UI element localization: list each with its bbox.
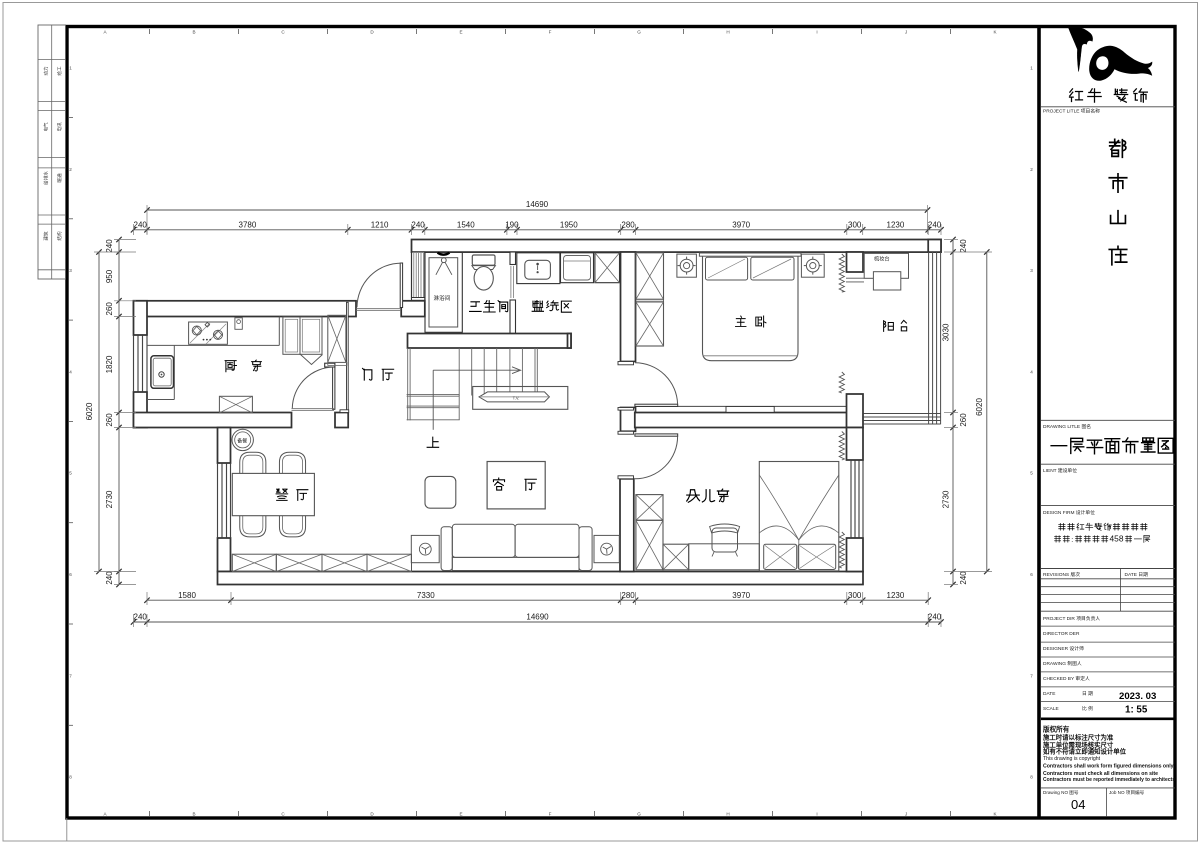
svg-text:J: J: [905, 30, 907, 35]
svg-text:3030: 3030: [942, 323, 951, 341]
svg-text:2023. 03: 2023. 03: [1119, 691, 1156, 702]
svg-text:Contractors shall work form fi: Contractors shall work form figured dime…: [1043, 763, 1174, 769]
svg-text:1230: 1230: [887, 220, 905, 229]
svg-text:T.V.: T.V.: [513, 395, 520, 400]
svg-text:PROJECT DIR 项目负责人: PROJECT DIR 项目负责人: [1043, 615, 1100, 622]
svg-text:B: B: [192, 812, 195, 817]
svg-text:如有不符请立即通知设计单位: 如有不符请立即通知设计单位: [1043, 747, 1127, 756]
svg-text:This drawing is copyright: This drawing is copyright: [1043, 756, 1101, 762]
svg-text:施工单位需现场核实尺寸: 施工单位需现场核实尺寸: [1043, 740, 1114, 749]
svg-text:300: 300: [848, 591, 862, 600]
svg-text:3970: 3970: [732, 591, 750, 600]
svg-text:240: 240: [959, 571, 968, 585]
svg-text:1: 1: [1030, 66, 1033, 71]
svg-text:DRAWING LITLE 图名: DRAWING LITLE 图名: [1043, 423, 1091, 430]
svg-text:1580: 1580: [178, 591, 196, 600]
svg-text:6: 6: [1030, 572, 1033, 577]
svg-text:7: 7: [1030, 673, 1033, 678]
svg-text:结构: 结构: [56, 231, 63, 241]
svg-text:7: 7: [69, 673, 72, 678]
svg-text:2: 2: [69, 167, 72, 172]
svg-text:DRAWING 制图人: DRAWING 制图人: [1043, 660, 1082, 667]
svg-text:240: 240: [105, 239, 114, 253]
svg-text:1: 55: 1: 55: [1125, 705, 1148, 716]
svg-text:2: 2: [1030, 167, 1033, 172]
svg-text:240: 240: [959, 239, 968, 253]
svg-text:1230: 1230: [887, 591, 905, 600]
svg-text:2730: 2730: [105, 490, 114, 508]
svg-text:240: 240: [411, 220, 425, 229]
svg-text:1540: 1540: [457, 220, 475, 229]
svg-text:日 期: 日 期: [1082, 691, 1093, 697]
svg-text:G: G: [637, 30, 641, 35]
svg-text:458: 458: [1110, 534, 1124, 544]
svg-text:260: 260: [959, 413, 968, 427]
svg-text:淋浴间: 淋浴间: [434, 294, 451, 302]
svg-text:280: 280: [621, 591, 635, 600]
svg-text:04: 04: [1071, 797, 1085, 812]
svg-text:PROJECT LITLE 项目名称: PROJECT LITLE 项目名称: [1043, 108, 1100, 115]
svg-text:F: F: [549, 30, 552, 35]
svg-text:3: 3: [69, 268, 72, 273]
svg-text:240: 240: [928, 613, 942, 622]
svg-text:H: H: [726, 30, 729, 35]
svg-text:3: 3: [1030, 268, 1033, 273]
svg-text:暖通: 暖通: [56, 173, 63, 183]
svg-text:3780: 3780: [239, 220, 257, 229]
svg-text:F: F: [549, 812, 552, 817]
svg-text:8: 8: [1030, 775, 1033, 780]
svg-text:1950: 1950: [560, 220, 578, 229]
svg-text:SCALE: SCALE: [1043, 706, 1059, 712]
svg-text:950: 950: [105, 269, 114, 283]
svg-text:6020: 6020: [85, 402, 94, 420]
svg-text:DESIGNER 设计师: DESIGNER 设计师: [1043, 645, 1084, 652]
svg-text:6: 6: [69, 572, 72, 577]
svg-text:I: I: [816, 30, 817, 35]
svg-text:比 例: 比 例: [1082, 705, 1093, 712]
svg-text:梳妆台: 梳妆台: [874, 255, 890, 263]
svg-text:240: 240: [928, 220, 942, 229]
svg-text:Contractors must check all dim: Contractors must check all dimensions on…: [1043, 771, 1158, 777]
svg-text:G: G: [637, 812, 641, 817]
svg-text:LIENT 建设单位: LIENT 建设单位: [1043, 467, 1077, 474]
svg-text:DESIGN FIRM 设计单位: DESIGN FIRM 设计单位: [1043, 509, 1095, 516]
svg-text:240: 240: [134, 220, 148, 229]
svg-text:4: 4: [69, 369, 72, 374]
svg-text:280: 280: [621, 220, 635, 229]
svg-text:300: 300: [848, 220, 862, 229]
svg-text:版权所有: 版权所有: [1042, 725, 1070, 734]
svg-text:DATE 日期: DATE 日期: [1125, 572, 1149, 578]
svg-text:施工时请以标注尺寸为准: 施工时请以标注尺寸为准: [1043, 732, 1114, 741]
svg-text:E: E: [459, 812, 462, 817]
svg-text:7330: 7330: [417, 591, 435, 600]
svg-text:1820: 1820: [105, 355, 114, 373]
svg-text:给排水: 给排水: [43, 171, 50, 185]
svg-text:I: I: [816, 812, 817, 817]
svg-text:备餐: 备餐: [237, 437, 247, 444]
svg-text:14690: 14690: [526, 613, 549, 622]
svg-text:电讯: 电讯: [56, 122, 63, 132]
svg-text:动力: 动力: [43, 66, 50, 76]
svg-text:3970: 3970: [732, 220, 750, 229]
svg-text:CHECKED BY 审定人: CHECKED BY 审定人: [1043, 675, 1090, 682]
svg-text:H: H: [726, 812, 729, 817]
svg-text:14690: 14690: [526, 200, 549, 209]
svg-text:建筑: 建筑: [43, 231, 50, 241]
svg-text:电气: 电气: [43, 122, 49, 132]
svg-text:240: 240: [134, 613, 148, 622]
svg-text:4: 4: [1030, 369, 1033, 374]
svg-text:5: 5: [1030, 471, 1033, 476]
svg-text:REVISIONS 版次: REVISIONS 版次: [1043, 571, 1080, 578]
svg-text:Job NO 项目编号: Job NO 项目编号: [1109, 789, 1145, 796]
svg-text:1: 1: [69, 66, 72, 71]
svg-text:260: 260: [105, 413, 114, 427]
svg-text:E: E: [459, 30, 462, 35]
svg-text::: :: [1071, 537, 1073, 544]
svg-text:260: 260: [105, 302, 114, 316]
svg-text:190: 190: [505, 220, 519, 229]
svg-text:8: 8: [69, 775, 72, 780]
svg-text:2730: 2730: [942, 490, 951, 508]
svg-text:240: 240: [105, 571, 114, 585]
svg-text:5: 5: [69, 471, 72, 476]
svg-text:绘工: 绘工: [56, 66, 63, 76]
svg-text:J: J: [905, 812, 907, 817]
svg-text:B: B: [192, 30, 195, 35]
svg-text:DIRECTOR DER: DIRECTOR DER: [1043, 631, 1080, 637]
svg-text:6020: 6020: [975, 398, 984, 416]
svg-text:DATE: DATE: [1043, 691, 1055, 697]
svg-text:Contractors must be reported i: Contractors must be reported immediately…: [1043, 777, 1175, 783]
svg-text:1210: 1210: [371, 220, 389, 229]
